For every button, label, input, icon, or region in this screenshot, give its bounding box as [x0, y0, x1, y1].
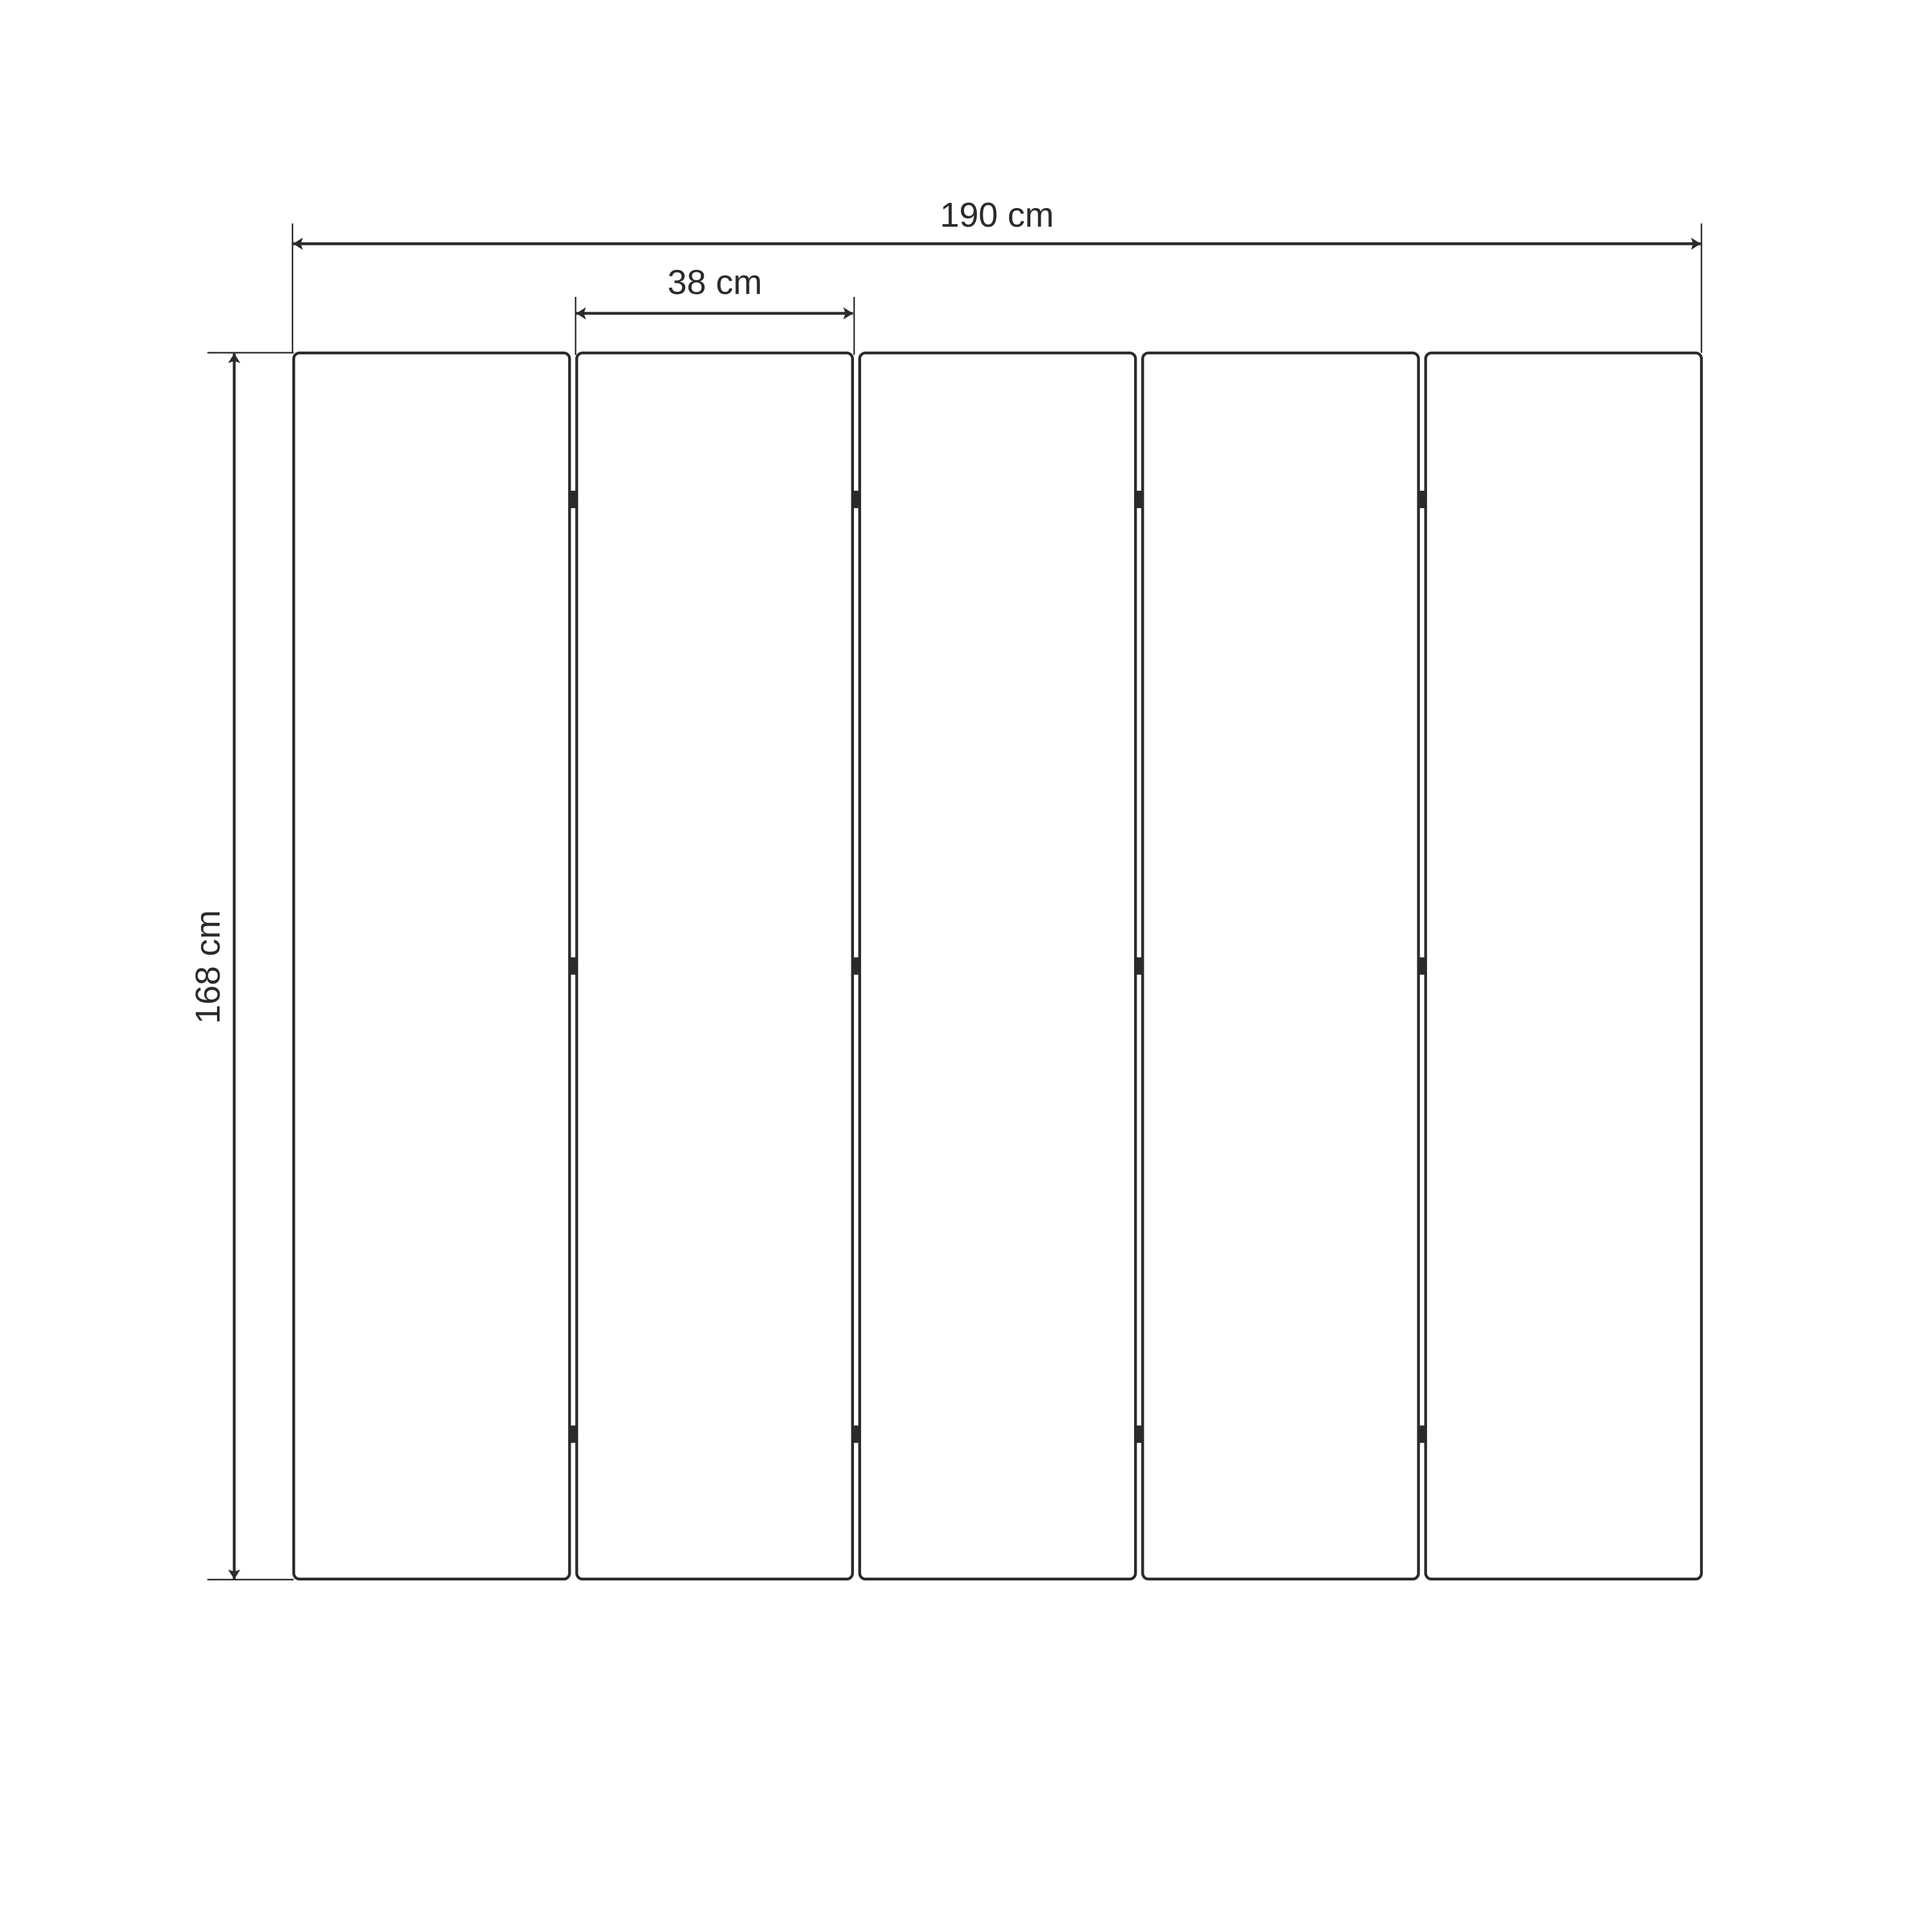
svg-text:38 cm: 38 cm [667, 263, 762, 302]
svg-text:190 cm: 190 cm [940, 196, 1054, 234]
svg-text:168 cm: 168 cm [189, 910, 227, 1024]
